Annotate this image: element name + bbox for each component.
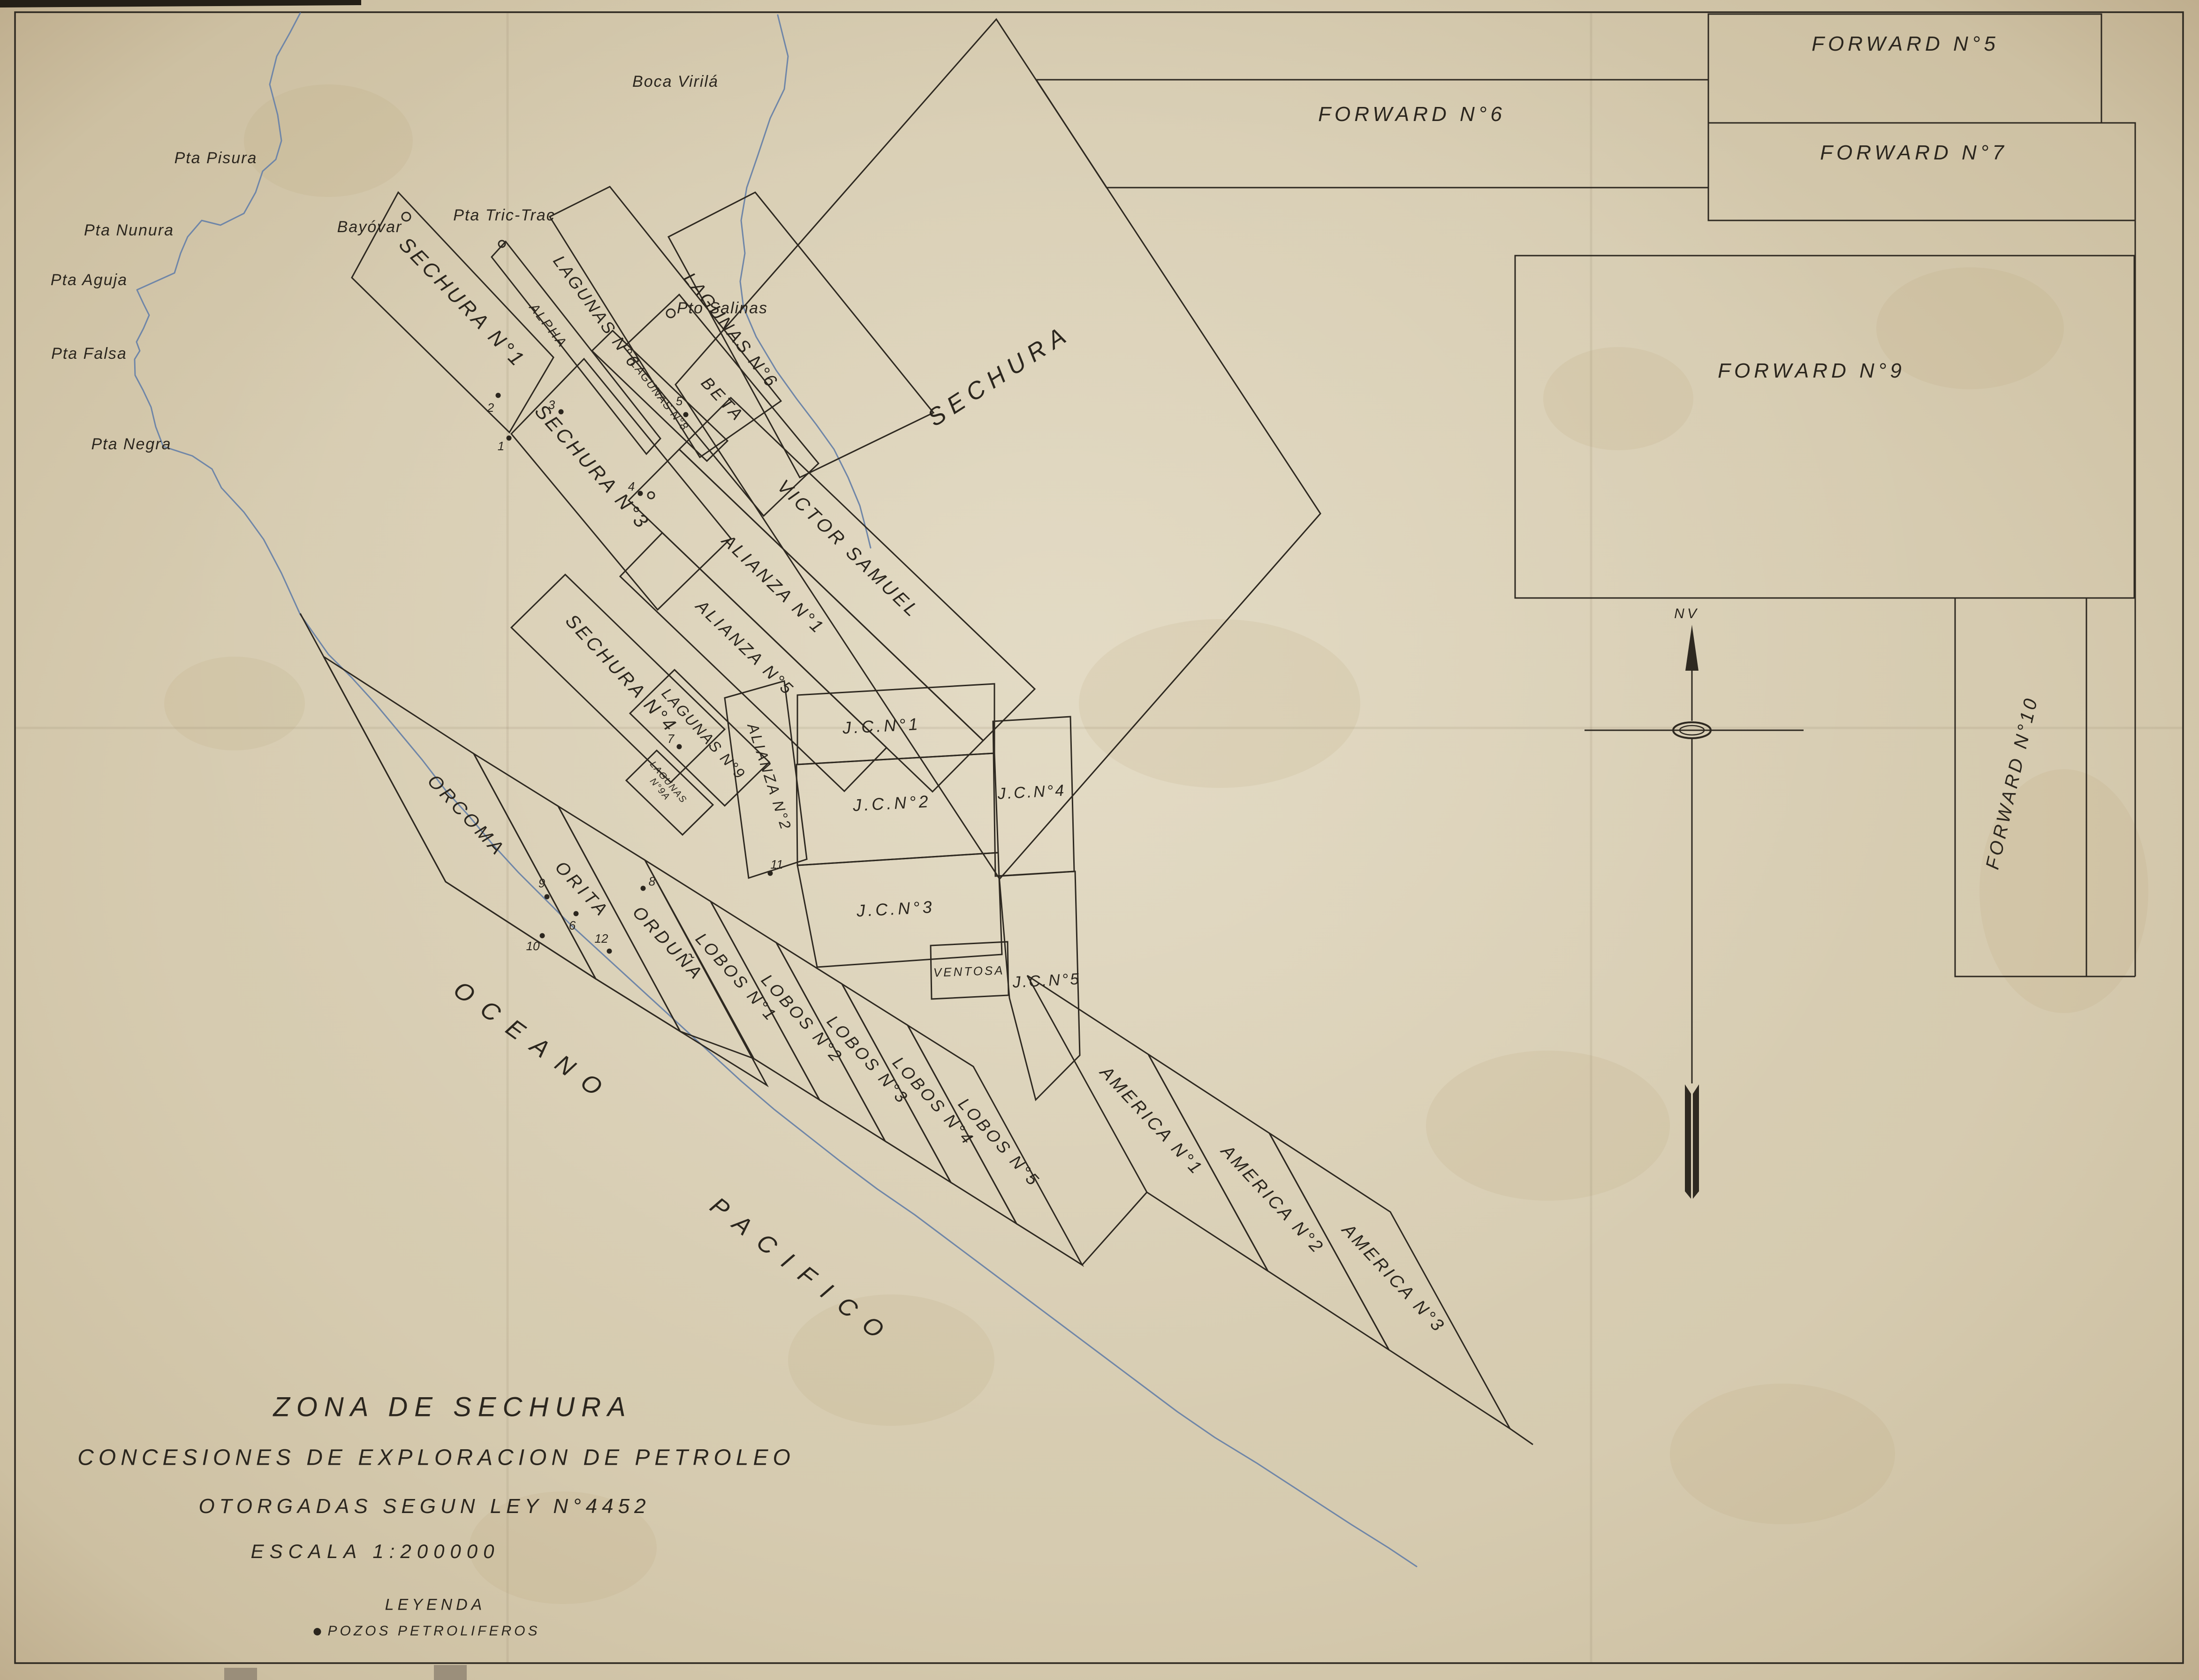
parcel-label-alianza-1: ALIANZA N°1: [717, 530, 828, 638]
paper-stain: [788, 1294, 994, 1426]
coast-label-pta-tric-trac: Pta Tric-Trac: [453, 206, 555, 224]
coast-label-pta-nunura: Pta Nunura: [84, 221, 174, 239]
parcel-label-lagunas-9a: LAGUNASN°9A: [639, 759, 689, 812]
paper-stain: [1543, 347, 1693, 450]
coast-label-pta-falsa: Pta Falsa: [51, 345, 127, 363]
oil-well-label-1: 1: [498, 439, 504, 453]
oil-well-11: [768, 871, 773, 876]
oil-well-9: [545, 894, 550, 900]
oil-well-label-9: 9: [538, 876, 545, 890]
oil-well-label-8: 8: [649, 874, 656, 888]
paper-stain: [1670, 1384, 1895, 1524]
paper-stain: [1426, 1051, 1670, 1201]
oil-well-8: [641, 886, 646, 891]
map-canvas: SECHURA N°1ALPHALAGUNAS N°6LAGUNAS N°6SE…: [0, 0, 2199, 1680]
oil-well-5: [683, 412, 689, 417]
oil-well-label-7: 7: [667, 732, 675, 746]
paper-stain: [1079, 619, 1360, 788]
sheet-edge-tear: [0, 0, 361, 8]
parcel-forward-7: [1708, 123, 2135, 220]
oil-well-6: [574, 911, 579, 916]
virila-river: [740, 15, 871, 548]
parcel-label-beta: BETA: [698, 373, 749, 425]
coast-label-pta-negra: Pta Negra: [91, 435, 171, 453]
point-marker-icon: [648, 492, 654, 499]
oil-well-4: [638, 491, 643, 496]
parcel-label-sechura-1: SECHURA N°1: [394, 233, 530, 372]
map-law-line: OTORGADAS SEGUN LEY N°4452: [198, 1495, 650, 1518]
coast-label-bayovar: Bayóvar: [337, 218, 402, 236]
parcel-label-alpha: ALPHA: [526, 300, 571, 351]
paper-stain: [164, 657, 305, 750]
oil-well-label-6: 6: [569, 918, 576, 932]
sheet-edge-tab: [224, 1668, 257, 1680]
parcel-label-america-3: AMERICA N°3: [1337, 1219, 1448, 1337]
compass-north-label: NV: [1674, 606, 1699, 621]
parcel-label-sechura-big: SECHURA: [923, 319, 1076, 432]
oil-well-12: [607, 949, 612, 954]
parcel-lagunas-6a: [550, 187, 781, 457]
parcel-label-america-1: AMERICA N°1: [1095, 1062, 1206, 1179]
parcel-label-sechura-3: SECHURA N°3: [531, 400, 654, 534]
ocean-label-oceano: OCEANO: [448, 976, 618, 1110]
oil-well-label-10: 10: [526, 939, 540, 953]
sheet-edge-tab: [434, 1665, 467, 1680]
compass-fletching-icon: [1685, 1084, 1691, 1199]
shore-boundary-3: [1510, 1429, 1533, 1445]
oil-well-3: [559, 409, 564, 415]
coast-label-pta-pisura: Pta Pisura: [174, 149, 258, 167]
parcel-label-forward-5: FORWARD N°5: [1812, 32, 1999, 55]
parcel-label-jc-3: J.C.N°3: [856, 897, 935, 921]
parcel-label-lagunas-6a: LAGUNAS N°6: [549, 252, 644, 372]
map-scale: ESCALA 1:200000: [250, 1540, 500, 1563]
oil-well-label-2: 2: [487, 401, 494, 415]
parcel-label-america-2: AMERICA N°2: [1216, 1141, 1327, 1258]
legend-item-label: POZOS PETROLIFEROS: [327, 1623, 540, 1639]
oil-well-label-3: 3: [548, 398, 555, 412]
parcel-label-ventosa: VENTOSA: [933, 963, 1005, 979]
oil-well-10: [540, 933, 545, 938]
parcel-label-orcoma: ORCOMA: [424, 771, 510, 861]
point-marker-icon: [402, 212, 410, 221]
parcel-label-jc-5: J.C.N°5: [1012, 970, 1081, 991]
oil-well-2: [496, 393, 501, 398]
compass-arrowhead-icon: [1685, 625, 1699, 671]
parcel-forward-5: [1708, 14, 2101, 123]
coast-label-boca-virila: Boca Virilá: [632, 73, 719, 91]
parcel-label-jc-4: J.C.N°4: [997, 781, 1066, 803]
legend-heading: LEYENDA: [385, 1596, 486, 1614]
oil-well-label-12: 12: [595, 931, 608, 946]
map-sheet: SECHURA N°1ALPHALAGUNAS N°6LAGUNAS N°6SE…: [0, 0, 2199, 1680]
parcel-label-forward-6: FORWARD N°6: [1318, 103, 1506, 126]
parcel-forward-6: [1036, 80, 1708, 188]
paper-stain: [244, 84, 413, 197]
map-title: ZONA DE SECHURA: [273, 1392, 632, 1423]
parcel-label-forward-7: FORWARD N°7: [1820, 141, 2008, 164]
parcel-label-lagunas-6b: LAGUNAS N°6: [680, 269, 782, 392]
oil-well-7: [677, 744, 682, 749]
oil-well-label-4: 4: [628, 479, 635, 493]
map-subtitle: CONCESIONES DE EXPLORACION DE PETROLEO: [77, 1445, 795, 1471]
point-marker-icon: [667, 309, 675, 318]
oil-well-label-5: 5: [676, 394, 683, 408]
legend-item: POZOS PETROLIFEROS: [313, 1623, 540, 1639]
oil-well-label-11: 11: [771, 857, 783, 871]
parcel-label-jc-2: J.C.N°2: [852, 792, 931, 815]
oil-well-dot-icon: [313, 1628, 321, 1635]
coast-label-pta-aguja: Pta Aguja: [51, 271, 128, 289]
parcel-label-forward-9: FORWARD N°9: [1718, 359, 1905, 382]
oil-well-1: [507, 436, 512, 441]
coast-label-pto-salinas: Pto Salinas: [677, 299, 768, 317]
parcel-label-jc-1: J.C.N°1: [842, 714, 921, 738]
shore-boundary-2: [1082, 1192, 1147, 1265]
